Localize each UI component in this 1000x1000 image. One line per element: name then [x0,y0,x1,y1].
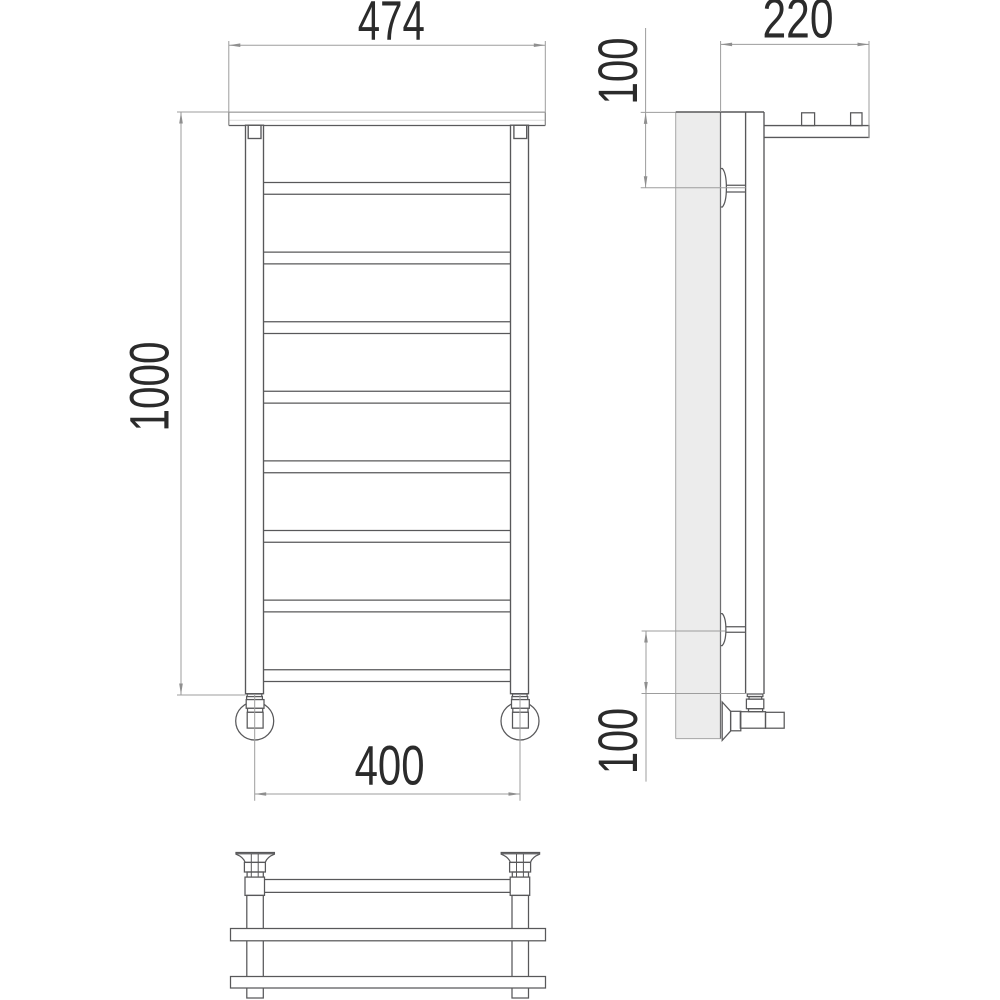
svg-text:220: 220 [763,0,834,50]
svg-text:1000: 1000 [119,342,181,432]
svg-text:474: 474 [358,0,425,51]
svg-text:400: 400 [355,735,425,797]
svg-text:100: 100 [587,38,649,105]
svg-text:100: 100 [587,708,649,774]
